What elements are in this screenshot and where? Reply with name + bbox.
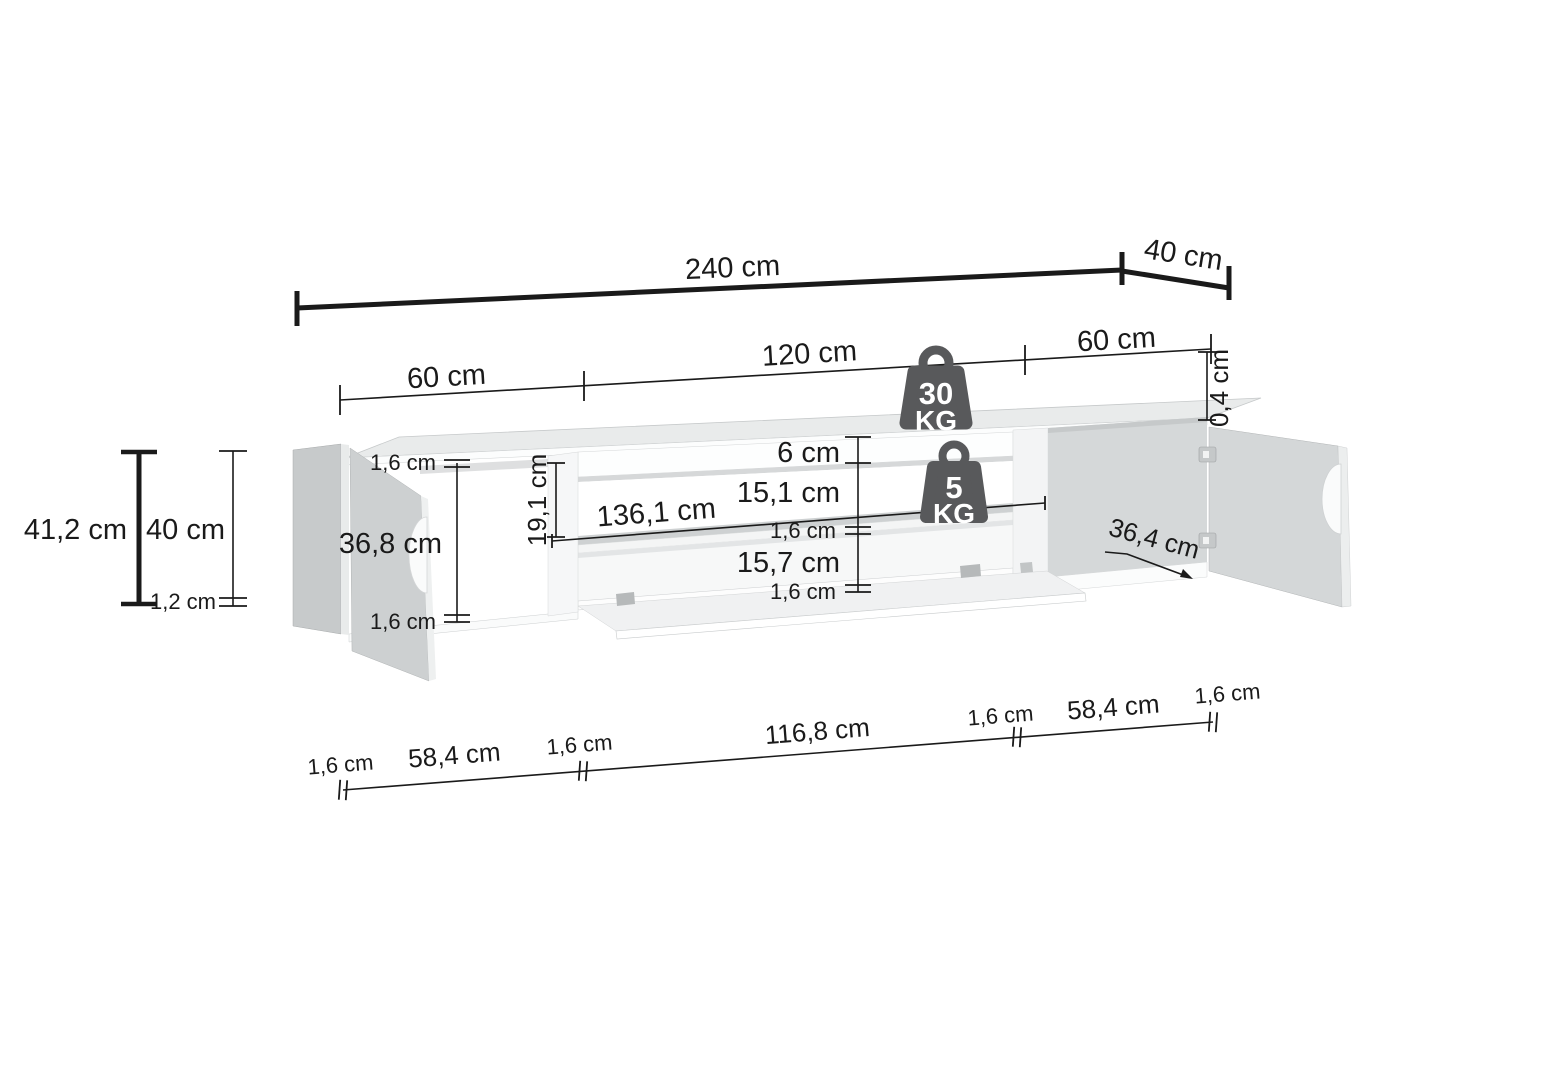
dim-label-lower-niche-height: 15,7 cm (737, 547, 840, 579)
flap-hinge-right (960, 564, 981, 578)
dim-label-overall-depth: 40 cm (1142, 233, 1225, 277)
dim-label-middle-span: 120 cm (761, 335, 858, 373)
left-side-panel (293, 444, 341, 634)
dim-label-top-rail-height: 6 cm (777, 437, 840, 469)
load-limit-top-icon: 30 KG (906, 350, 966, 436)
dim-label-bottom-span-5: 58,4 cm (1066, 688, 1161, 725)
dim-label-bottom-span-1: 58,4 cm (407, 736, 502, 773)
dim-label-top-panel-thickness: 0,4 cm (1204, 349, 1234, 427)
dim-label-carcass-height: 40 cm (146, 514, 225, 546)
dim-label-bottom-span-2: 1,6 cm (546, 729, 614, 759)
dim-label-left-opening-height: 36,8 cm (339, 528, 442, 560)
dim-label-bottom-span-6: 1,6 cm (1194, 678, 1262, 708)
dim-label-bottom-span-4: 1,6 cm (967, 700, 1035, 730)
flap-hinge-left (616, 592, 635, 606)
dim-front-spans: 60 cm 120 cm 60 cm (340, 322, 1211, 415)
dim-label-left-panel-top: 1,6 cm (370, 450, 436, 475)
dim-overall-width: 240 cm (297, 250, 1122, 326)
diagram-page: 240 cm 40 cm 60 cm 120 cm 60 cm 0,4 cm (0, 0, 1554, 1080)
dim-label-bottom-span-3: 116,8 cm (764, 712, 871, 750)
load-limit-shelf-unit: KG (933, 498, 975, 529)
dim-bottom-spans: 1,6 cm 58,4 cm 1,6 cm 116,8 cm 1,6 cm 58… (307, 678, 1262, 800)
dim-label-upper-niche-height: 15,1 cm (737, 477, 840, 509)
dim-label-base-gap: 1,2 cm (150, 589, 216, 614)
dim-label-left-span: 60 cm (406, 359, 487, 396)
flap-stay-bracket (1020, 562, 1033, 573)
dim-overall-height: 41,2 cm (24, 452, 157, 604)
right-door (1209, 427, 1342, 607)
right-door-hinge-top (1199, 447, 1216, 462)
dim-top-panel-thickness: 0,4 cm (1198, 349, 1234, 427)
dim-label-bottom-span-0: 1,6 cm (307, 749, 375, 779)
dim-overall-depth: 40 cm (1122, 233, 1229, 300)
dim-label-right-span: 60 cm (1076, 322, 1157, 359)
dim-label-left-panel-bottom: 1,6 cm (370, 609, 436, 634)
tv-stand-dimension-diagram: 240 cm 40 cm 60 cm 120 cm 60 cm 0,4 cm (0, 0, 1554, 1080)
dim-carcass-height: 40 cm 1,2 cm (146, 451, 247, 614)
dim-label-niche-rear-height: 19,1 cm (522, 454, 552, 547)
load-limit-top-unit: KG (915, 405, 957, 436)
dim-label-overall-height: 41,2 cm (24, 514, 127, 546)
dim-label-overall-width: 240 cm (684, 250, 780, 286)
dim-label-bottom-panel-thickness: 1,6 cm (770, 579, 836, 604)
